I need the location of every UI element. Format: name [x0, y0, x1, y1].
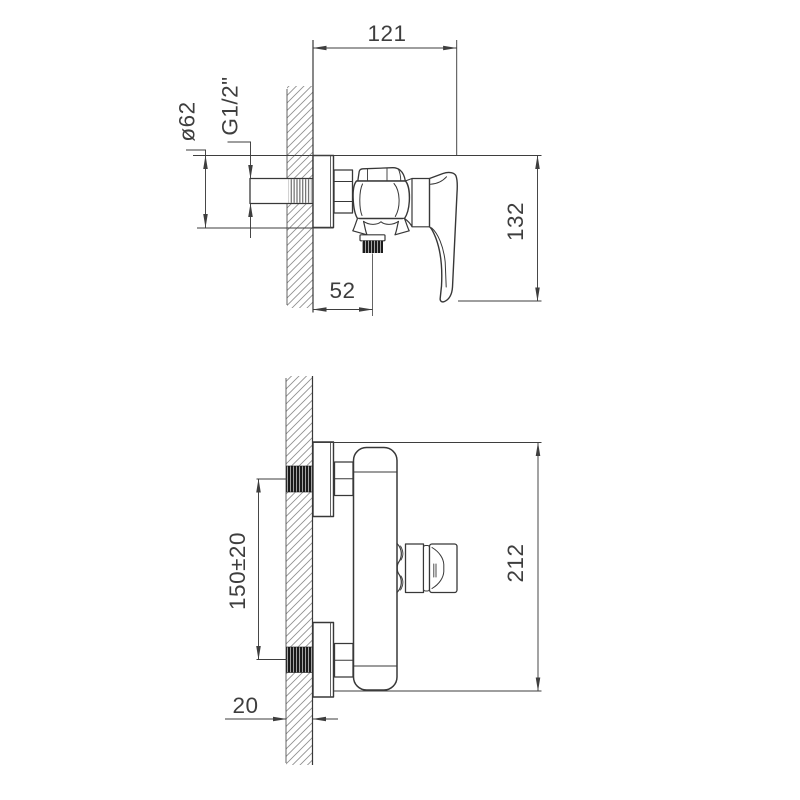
body-waist-curves — [364, 221, 399, 224]
front-view: 150±20 212 20 — [225, 376, 542, 765]
wall-hatching — [286, 376, 313, 765]
dimension-label-offset: 52 — [329, 278, 355, 303]
mixer-body — [354, 448, 398, 691]
pipe-thread-section — [289, 179, 312, 203]
side-view-wall — [286, 40, 313, 313]
dimension-thread-size: G1/2" — [218, 76, 252, 238]
dimension-outlet-offset: 52 — [313, 278, 373, 310]
technical-drawing-page: 121 ø62 G1/2" 132 52 — [0, 0, 800, 800]
knob — [397, 544, 457, 593]
dimension-width: 121 — [313, 21, 457, 156]
side-view: 121 ø62 G1/2" 132 52 — [175, 21, 542, 316]
dimension-label-spacing: 150±20 — [225, 532, 250, 610]
knob-stem — [406, 544, 424, 593]
dimension-body-height: 132 — [458, 156, 542, 302]
dimension-label-height: 132 — [503, 202, 528, 241]
valve-body — [353, 168, 410, 235]
escutcheon-plate — [313, 156, 334, 228]
technical-drawing-canvas: 121 ø62 G1/2" 132 52 — [0, 0, 800, 800]
front-view-wall — [286, 376, 313, 765]
dimension-label-diameter: ø62 — [175, 101, 200, 141]
handle-lever — [430, 172, 458, 301]
dimension-label-width: 121 — [367, 21, 406, 46]
dimension-label-thread: G1/2" — [218, 76, 243, 135]
dimension-inlet-spacing: 150±20 — [225, 479, 287, 660]
dimension-label-overall-height: 212 — [503, 543, 528, 582]
supply-pipe — [250, 179, 313, 204]
body-outline — [354, 448, 398, 691]
knob-rim — [424, 546, 430, 592]
mounting-nut — [334, 170, 353, 213]
outlet-collar — [360, 235, 385, 241]
body-lower-flanges — [353, 219, 409, 235]
inlet-thread — [287, 466, 313, 492]
inlet-thread — [287, 647, 313, 673]
shower-outlet — [360, 235, 385, 316]
outlet-thread — [362, 241, 383, 253]
dimension-label-wall: 20 — [232, 693, 258, 718]
handle — [405, 172, 458, 301]
